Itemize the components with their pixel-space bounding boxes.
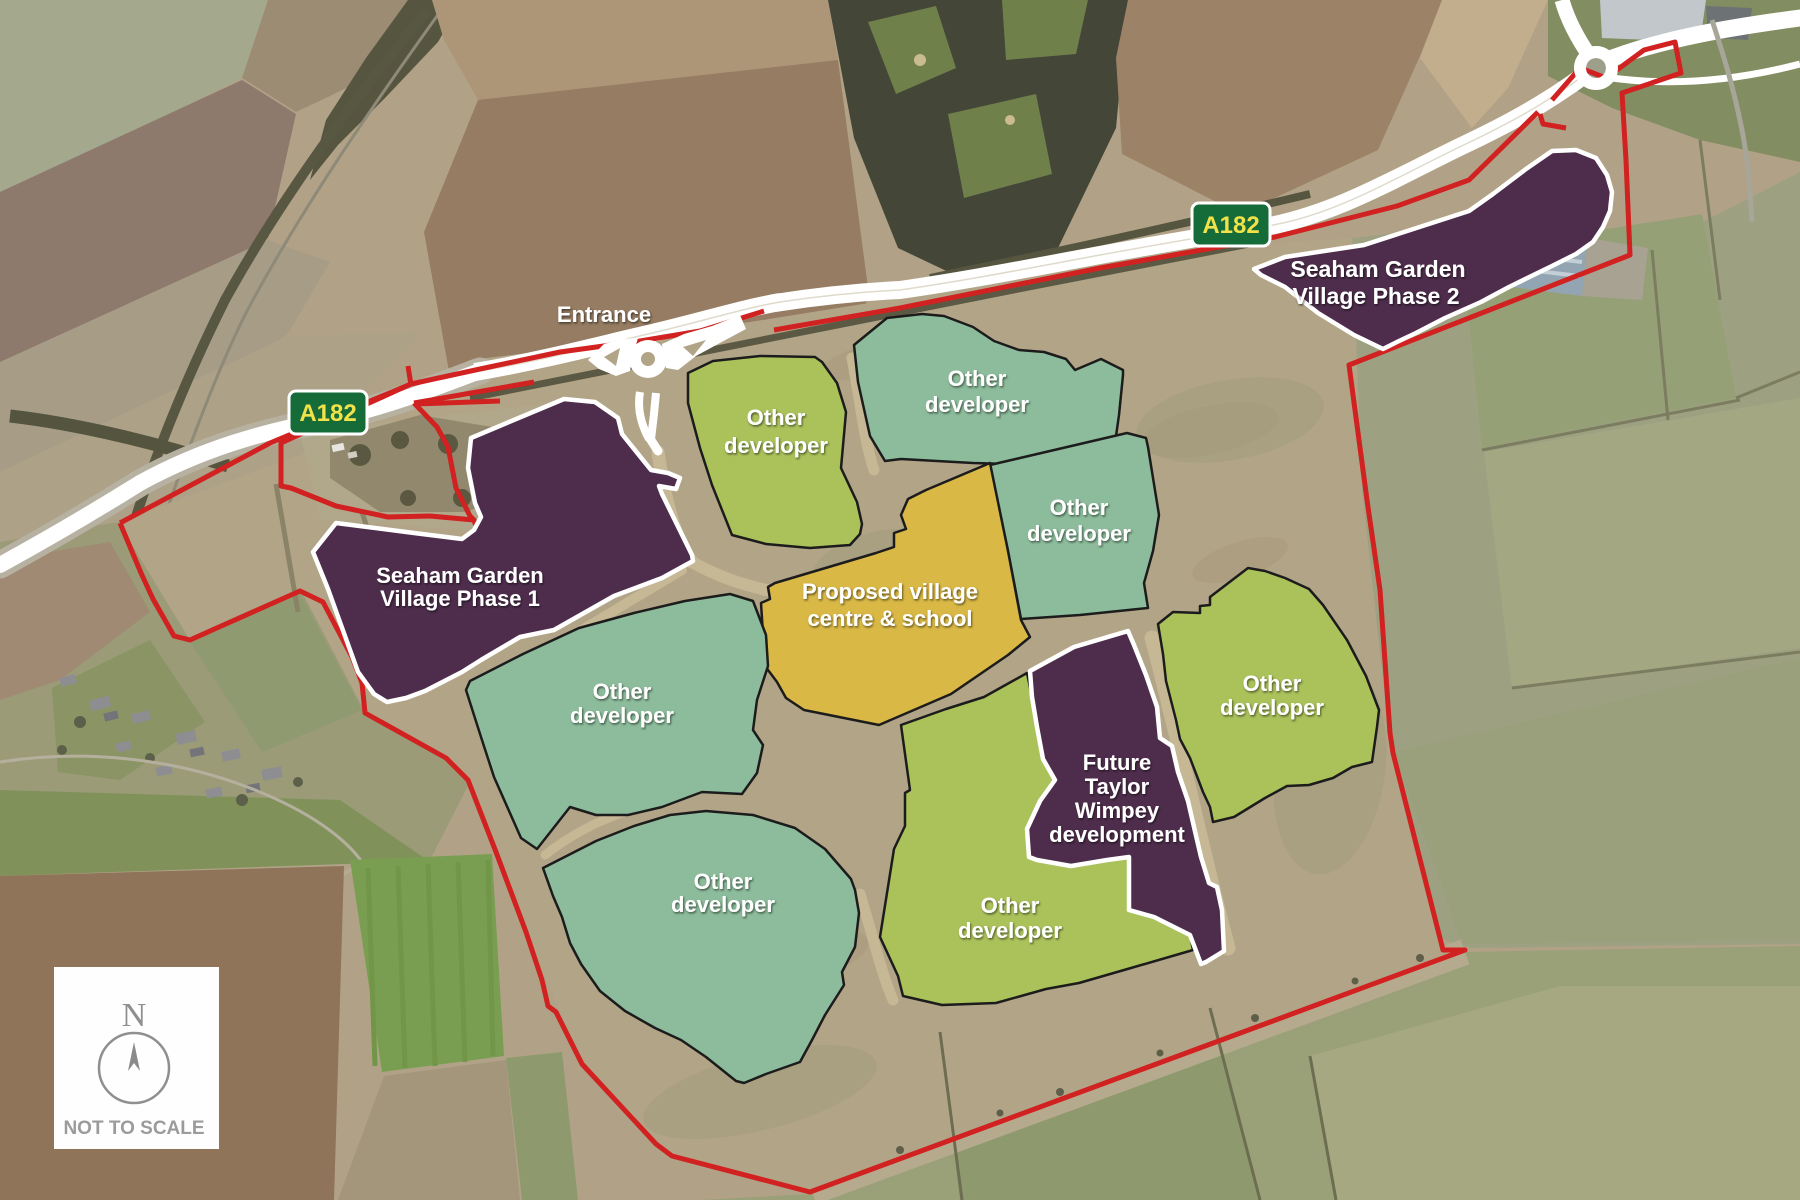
svg-text:developer: developer <box>671 892 775 917</box>
svg-text:Other: Other <box>981 893 1040 918</box>
svg-text:Other: Other <box>747 405 806 430</box>
svg-text:Village Phase 2: Village Phase 2 <box>1292 283 1459 309</box>
svg-text:Other: Other <box>694 869 753 894</box>
svg-text:Seaham Garden: Seaham Garden <box>1290 256 1465 282</box>
svg-text:centre & school: centre & school <box>807 606 972 631</box>
svg-text:Entrance: Entrance <box>557 302 651 327</box>
svg-text:A182: A182 <box>299 400 356 427</box>
svg-text:NOT TO SCALE: NOT TO SCALE <box>63 1118 204 1139</box>
svg-text:developer: developer <box>958 918 1062 943</box>
svg-text:developer: developer <box>724 433 828 458</box>
svg-text:Proposed village: Proposed village <box>802 579 978 604</box>
svg-text:developer: developer <box>1027 521 1131 546</box>
svg-text:Other: Other <box>1243 671 1302 696</box>
svg-text:N: N <box>122 997 147 1034</box>
svg-text:Seaham Garden: Seaham Garden <box>376 563 544 588</box>
svg-text:A182: A182 <box>1202 212 1259 239</box>
svg-text:development: development <box>1049 822 1185 847</box>
svg-text:Other: Other <box>1050 495 1109 520</box>
svg-text:Taylor: Taylor <box>1085 774 1150 799</box>
svg-text:Other: Other <box>948 366 1007 391</box>
svg-text:Other: Other <box>593 679 652 704</box>
svg-text:developer: developer <box>570 703 674 728</box>
svg-text:developer: developer <box>1220 695 1324 720</box>
svg-text:Wimpey: Wimpey <box>1075 798 1160 823</box>
svg-text:developer: developer <box>925 392 1029 417</box>
svg-text:Future: Future <box>1083 750 1151 775</box>
svg-text:Village Phase 1: Village Phase 1 <box>380 586 540 611</box>
